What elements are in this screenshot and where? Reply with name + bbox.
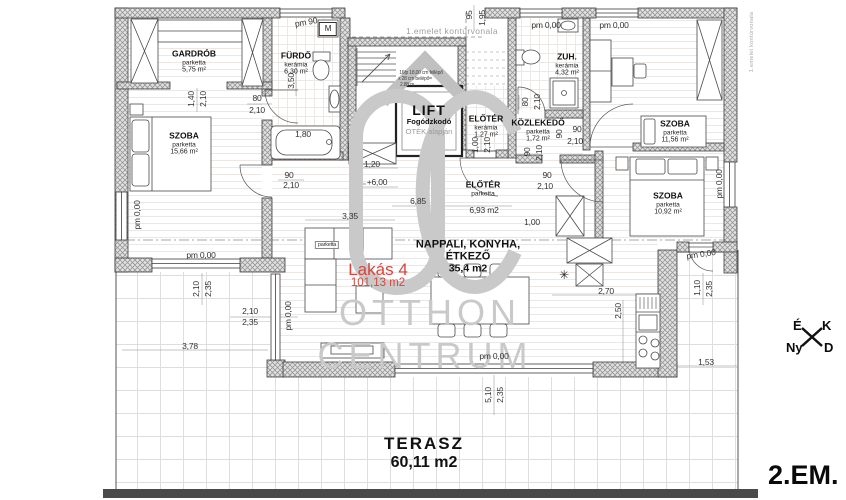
shelf (590, 40, 611, 102)
wardrobe (697, 20, 722, 100)
wardrobe (567, 238, 612, 263)
stairs (357, 48, 396, 86)
cabinet (576, 264, 603, 286)
shower-tray (550, 78, 578, 108)
toilet (313, 52, 330, 80)
bed (130, 104, 211, 191)
washbasin (329, 86, 340, 112)
window (116, 192, 127, 240)
watermark-line2: CENTRUM (318, 335, 533, 376)
kitchen-counter (636, 294, 660, 368)
bed (616, 157, 718, 236)
window (280, 9, 332, 17)
window (596, 9, 638, 17)
wardrobe (242, 19, 263, 86)
toilet (516, 50, 540, 65)
watermark-line1: OTTHON (339, 292, 521, 333)
window (271, 274, 280, 360)
wardrobe (131, 19, 158, 83)
floor-plan-drawing: OTTHON CENTRUM (0, 0, 846, 500)
bed (641, 116, 706, 147)
door-opening (689, 243, 713, 252)
wardrobe (556, 196, 584, 236)
bathtub (271, 126, 340, 159)
upper-floor-contour (345, 10, 506, 84)
window (520, 9, 562, 17)
closet-shelf (158, 20, 242, 42)
window (152, 259, 240, 268)
door-opening (474, 151, 496, 158)
washing-machine (318, 20, 338, 37)
building-edge (103, 489, 758, 498)
floor-plan: OTTHON CENTRUM LIFT Fogódzkodó OTÉK alap… (0, 0, 846, 500)
window (724, 162, 735, 207)
washbasin (558, 19, 578, 32)
